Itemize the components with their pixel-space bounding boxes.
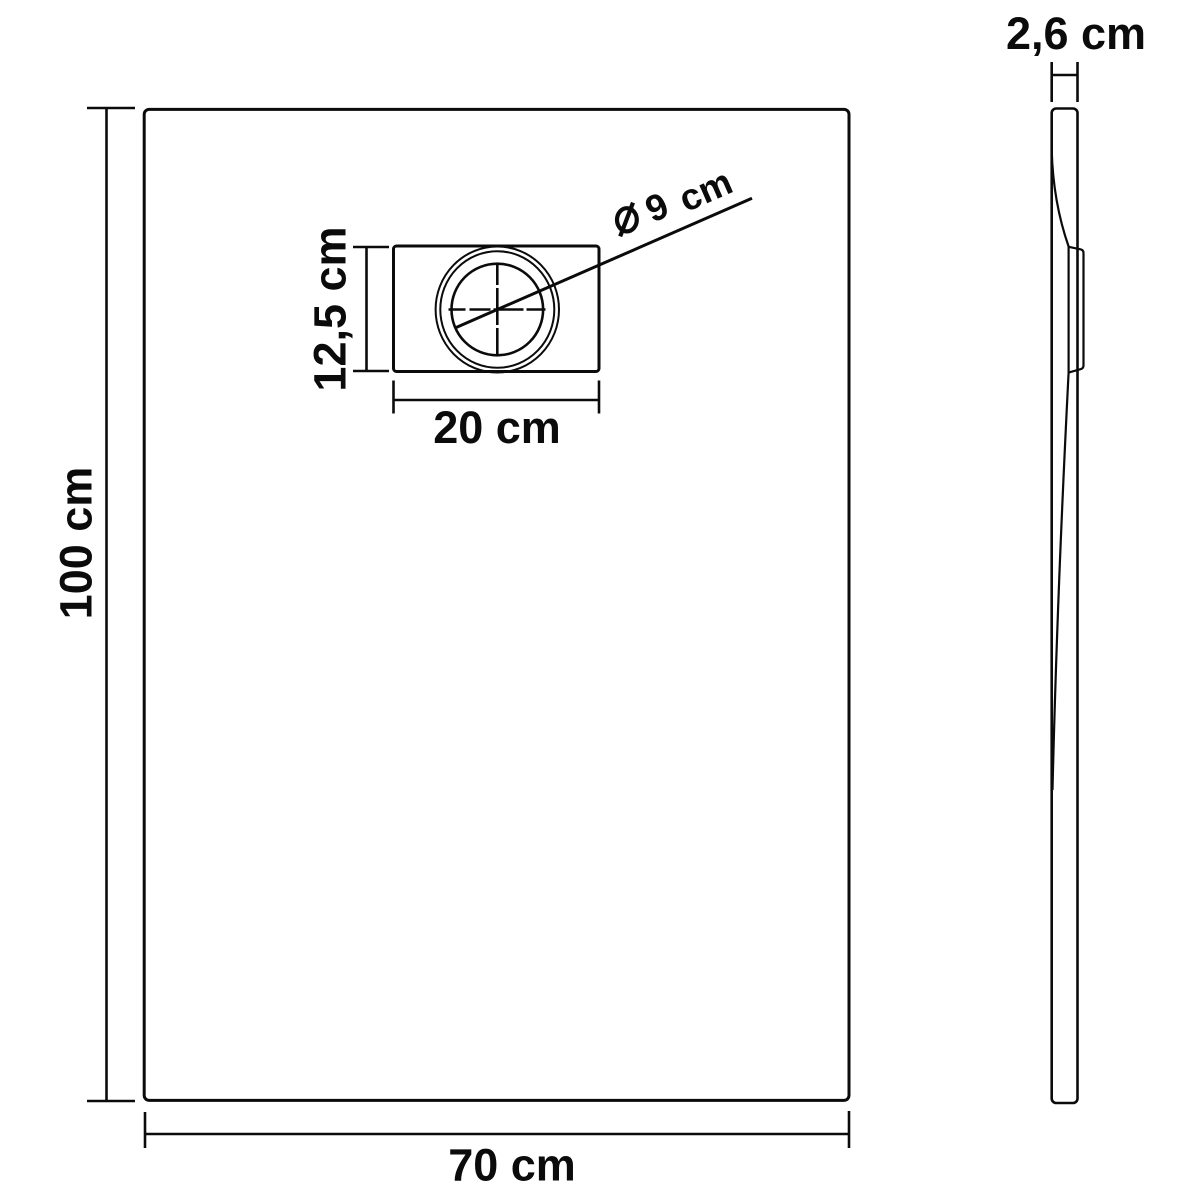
svg-text:70 cm: 70 cm: [448, 1140, 576, 1191]
svg-text:12,5 cm: 12,5 cm: [305, 226, 356, 391]
svg-text:100 cm: 100 cm: [51, 467, 102, 620]
svg-text:2,6 cm: 2,6 cm: [1006, 8, 1146, 59]
svg-text:20 cm: 20 cm: [433, 402, 561, 453]
